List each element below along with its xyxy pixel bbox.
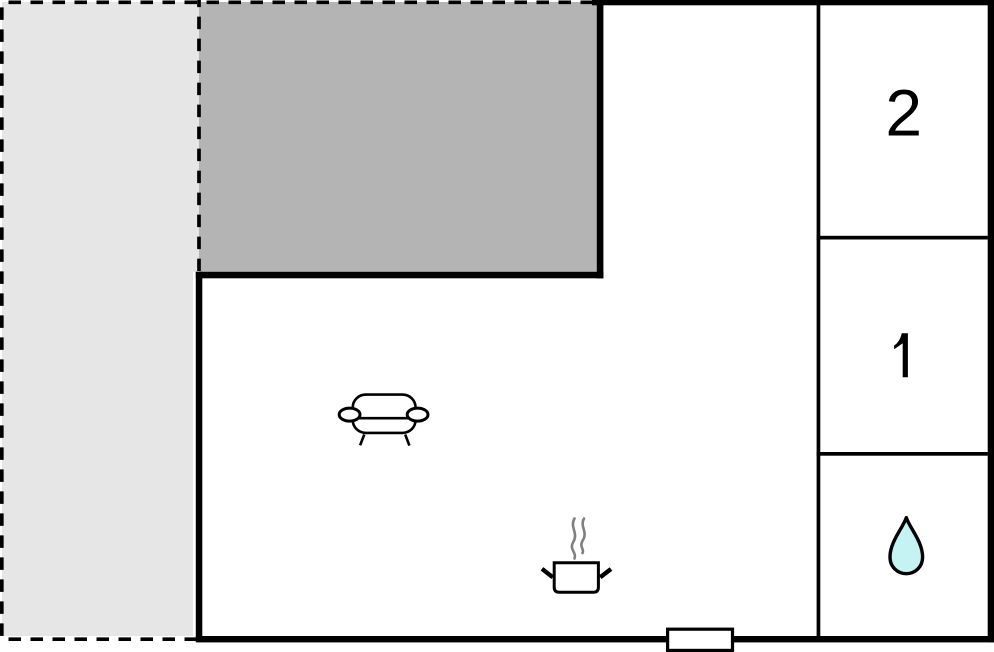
svg-text:2: 2	[885, 76, 922, 150]
